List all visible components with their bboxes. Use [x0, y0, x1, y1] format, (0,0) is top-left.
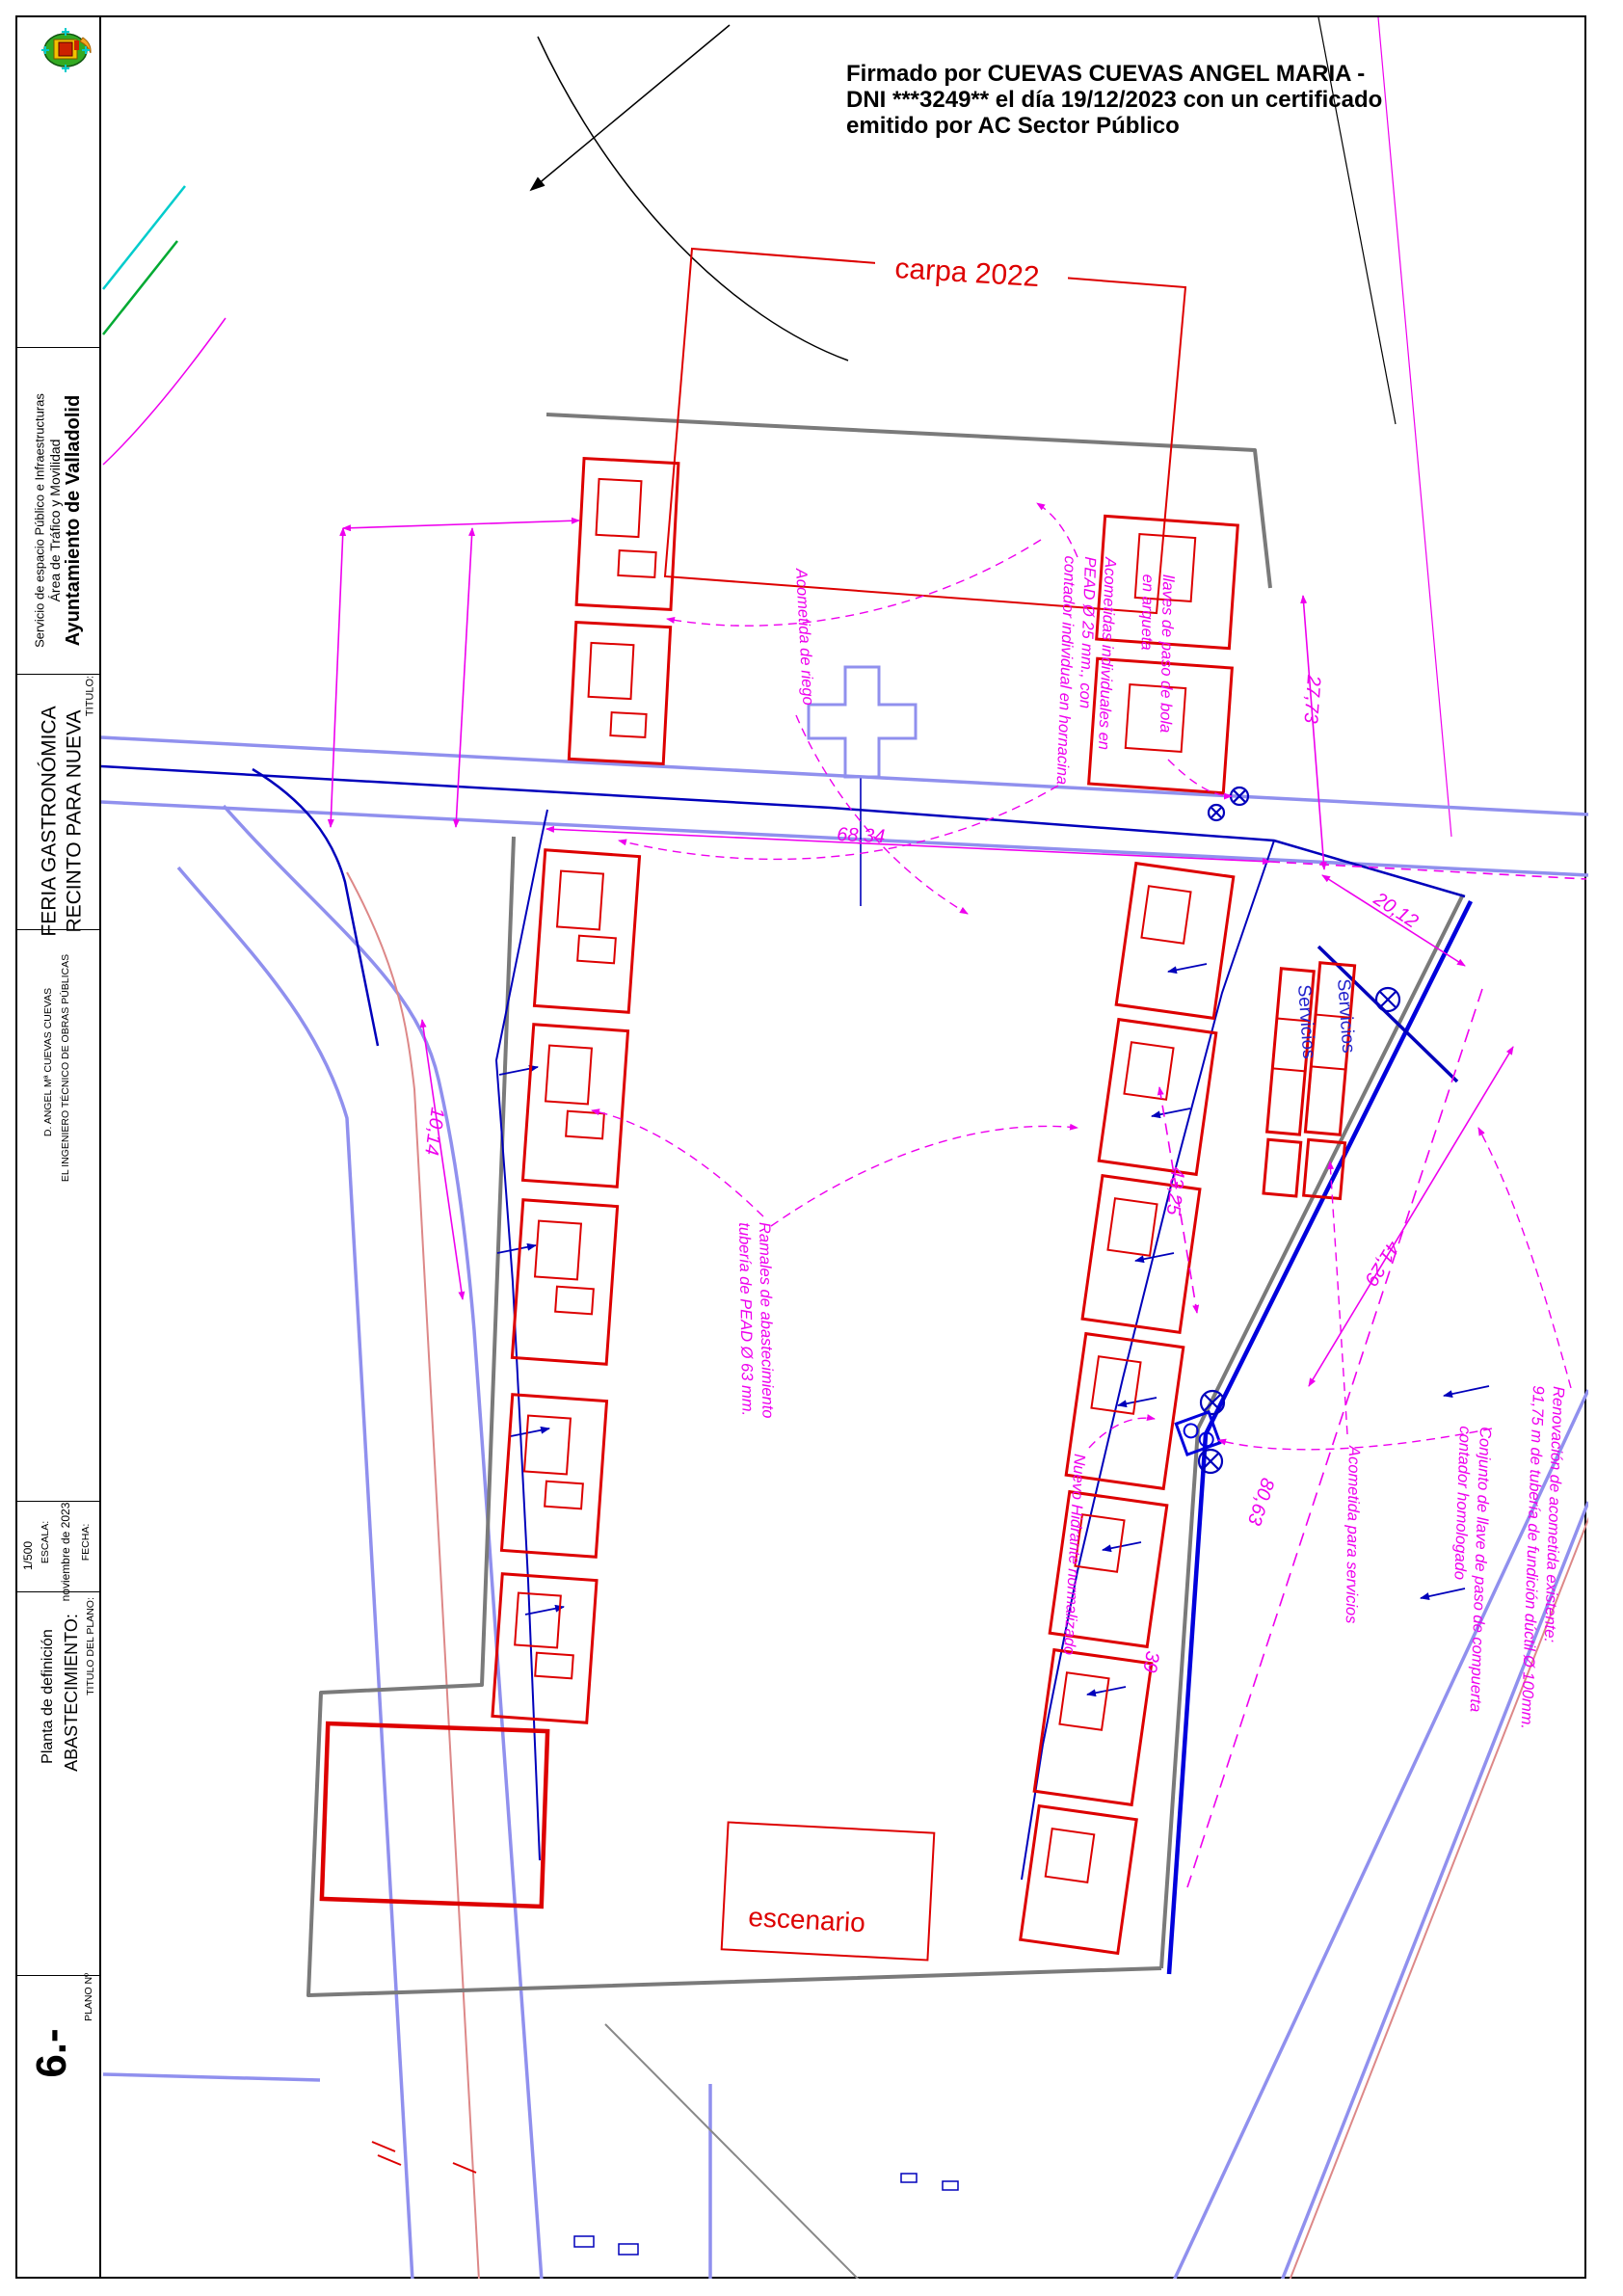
engineer-name: D. ANGEL Mª CUEVAS CUEVAS	[43, 988, 54, 1136]
plano-titulo-line2: Planta de definición	[40, 1629, 56, 1764]
fecha-label: FECHA:	[81, 1524, 92, 1562]
dim-68-34: 68,34	[837, 824, 886, 847]
plan-drawing: Firmado por CUEVAS CUEVAS ANGEL MARIA - …	[101, 15, 1588, 2279]
escala-label: ESCALA:	[40, 1521, 51, 1563]
dim-80-63: 80,63	[1243, 1475, 1278, 1527]
titulo-line1: RECINTO PARA NUEVA	[65, 709, 85, 932]
enclosure-boundary	[308, 414, 1463, 1995]
signature-line3: emitido por AC Sector Público	[846, 113, 1180, 139]
annotation-llaves-l2: en arqueta	[1138, 574, 1157, 651]
escala-value: 1/500	[22, 1541, 34, 1570]
plan-sheet: { "titleblock": { "org_name": "Ayuntamie…	[0, 0, 1623, 2296]
irrigation-cross-symbol	[809, 667, 916, 777]
titulo-label: TITULO:	[86, 676, 96, 716]
dim-43-25: 43,25	[1162, 1165, 1188, 1216]
annotation-acometidas-l3: contador individual en hornacina	[1053, 555, 1078, 785]
fecha-value: noviembre de 2023	[60, 1503, 71, 1602]
engineer-title: EL INGENIERO TÉCNICO DE OBRAS PÚBLICAS	[61, 954, 71, 1182]
valladolid-crest-logo	[38, 26, 93, 74]
corner-utility-lines	[103, 186, 226, 465]
annotation-ramales: Ramales de abastecimiento tubería de PEA…	[735, 1222, 777, 1424]
titleblock-cell-engineer	[15, 930, 101, 1502]
signature-line1: Firmado por CUEVAS CUEVAS ANGEL MARIA -	[846, 61, 1365, 87]
escenario-zone	[722, 1822, 935, 1960]
annotation-llaves: llaves de paso de bola en arqueta	[1136, 574, 1177, 737]
bottom-misc-marks	[372, 2142, 958, 2255]
stall-outlines	[492, 459, 1237, 1954]
plano-titulo-label: TITULO DEL PLANO:	[86, 1597, 96, 1695]
org-name: Ayuntamiento de Valladolid	[64, 395, 83, 646]
annotation-hidrante: Nuevo Hidrante normalizado	[1060, 1454, 1088, 1656]
plano-num: 6.-	[31, 2028, 73, 2077]
renovated-main-pipe	[1169, 901, 1471, 1974]
north-arrow	[531, 25, 730, 190]
dim-27-73: 27,73	[1300, 674, 1325, 724]
annotation-acometida-servicios: Acometida para servicios	[1343, 1445, 1363, 1624]
annotation-acometidas: Acometidas individuales en PEAD Ø 25 mm.…	[1053, 554, 1119, 787]
annotation-ramales-l1: Ramales de abastecimiento	[756, 1222, 777, 1419]
label-servicios-2: Servicios	[1333, 978, 1358, 1054]
annotation-llaves-l1: llaves de paso de bola	[1157, 574, 1177, 733]
label-servicios-1: Servicios	[1293, 984, 1318, 1059]
dimension-lines	[331, 521, 1586, 1887]
signature-line2: DNI ***3249** el día 19/12/2023 con un c…	[846, 87, 1382, 113]
annotation-renovacion-l2: 91,75 m de tubería de fundición dúctil Ø…	[1518, 1385, 1547, 1729]
dim-10-14: 10,14	[420, 1106, 448, 1157]
leader-line-top	[1378, 17, 1451, 837]
dim-39: 39	[1138, 1649, 1163, 1674]
plano-num-label: PLANO Nº	[84, 1973, 94, 2021]
org-service: Servicio de espacio Público e Infraestru…	[34, 393, 46, 648]
annotation-renovacion: Renovación de acometida existente: 91,75…	[1518, 1385, 1567, 1730]
titulo-line2: FERIA GASTRONÓMICA	[40, 706, 60, 936]
annotation-ramales-l2: tubería de PEAD Ø 63 mm.	[735, 1222, 757, 1416]
annotation-conjunto-l2: contador homologado	[1450, 1426, 1474, 1580]
org-area: Área de Tráfico y Movilidad	[48, 440, 62, 602]
dim-41-29: 41,29	[1360, 1237, 1403, 1289]
plano-titulo-line1: ABASTECIMIENTO:	[63, 1614, 80, 1772]
street-lines	[101, 737, 1588, 2279]
bottom-curb-line	[605, 2024, 860, 2279]
dim-20-12: 20,12	[1369, 888, 1422, 932]
annotation-conjunto: Conjunto de llave de paso de compuerta c…	[1447, 1426, 1494, 1717]
label-escenario: escenario	[748, 1902, 866, 1937]
